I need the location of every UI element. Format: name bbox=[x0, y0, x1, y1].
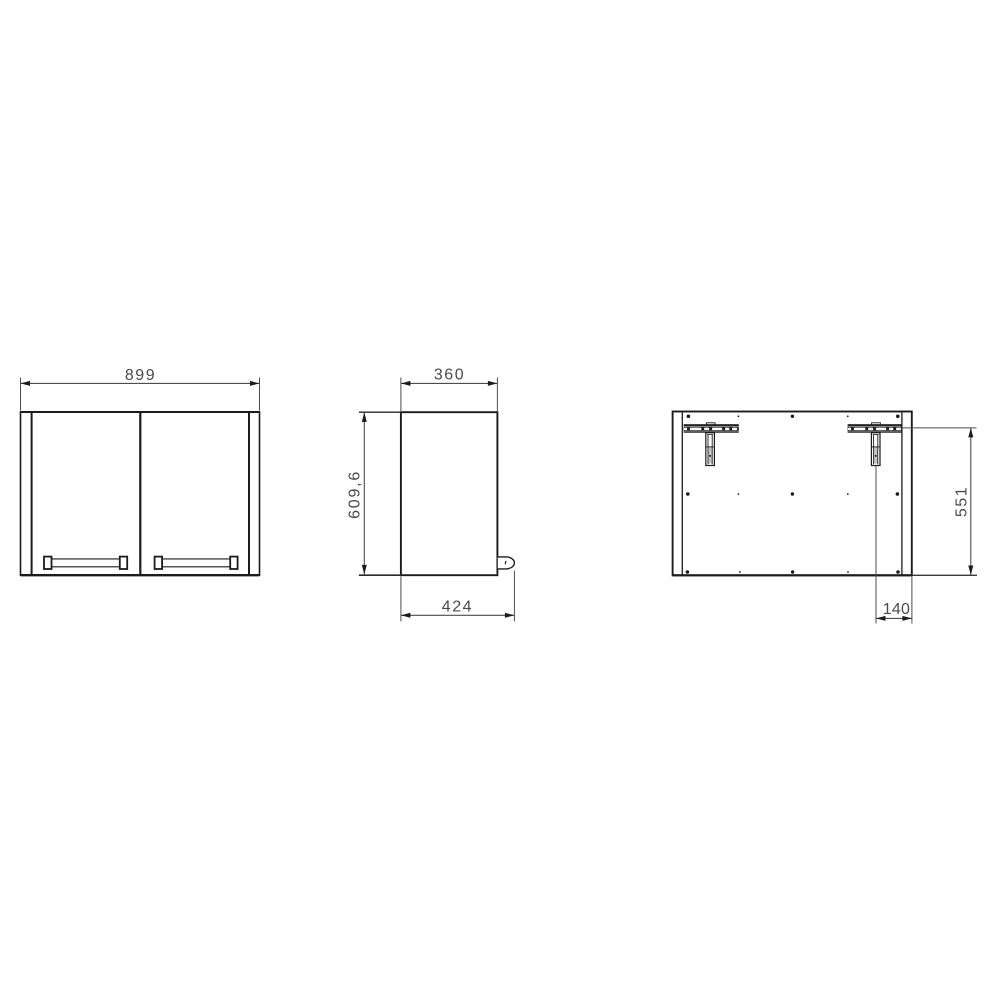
svg-text:609,6: 609,6 bbox=[346, 470, 363, 519]
svg-text:140: 140 bbox=[883, 601, 910, 618]
svg-text:360: 360 bbox=[434, 366, 465, 383]
svg-text:424: 424 bbox=[442, 599, 473, 616]
svg-text:551: 551 bbox=[953, 486, 970, 517]
svg-text:899: 899 bbox=[125, 367, 156, 384]
